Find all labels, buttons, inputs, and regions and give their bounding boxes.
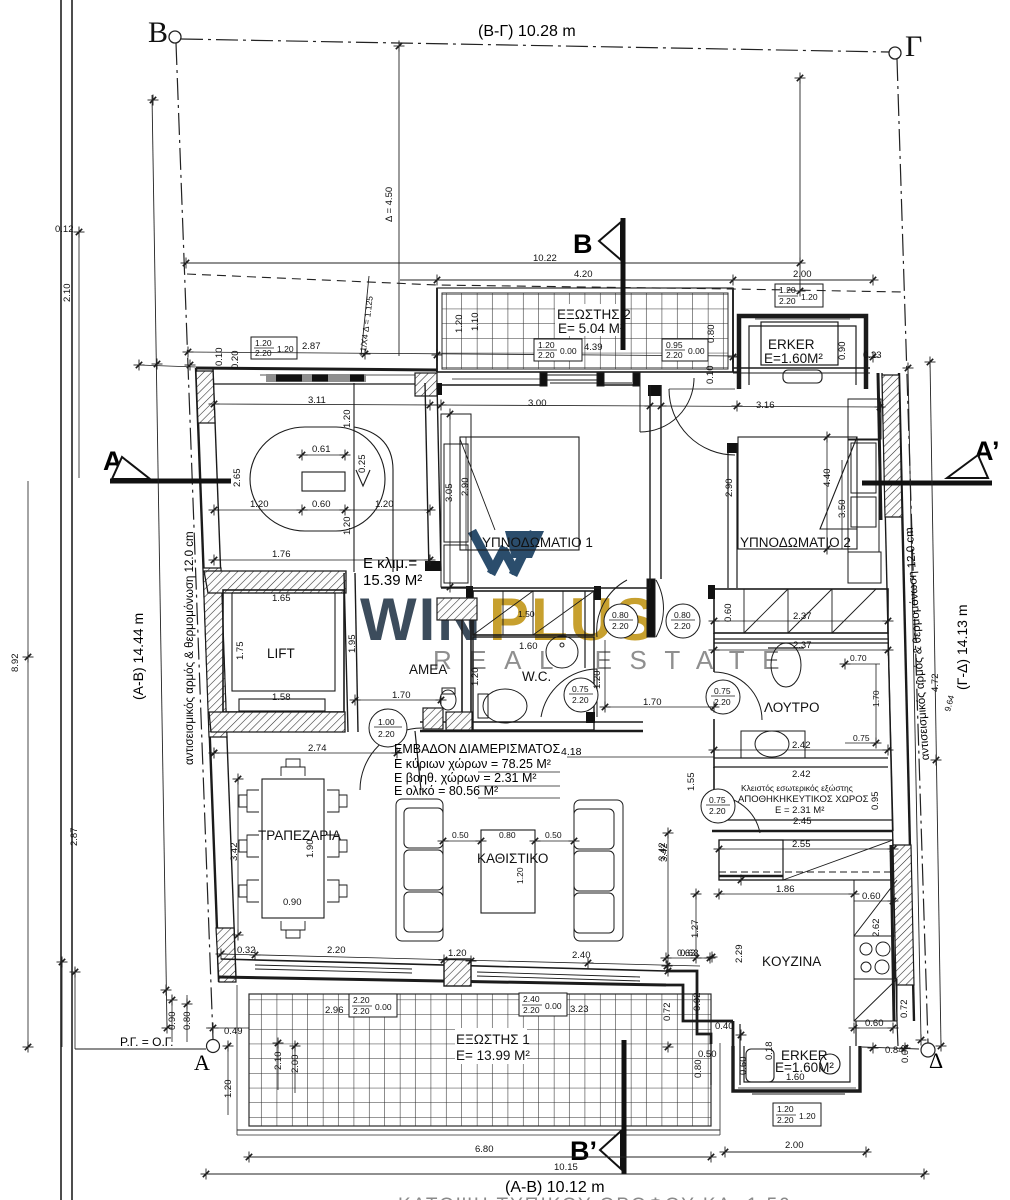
svg-text:1.70: 1.70: [392, 690, 411, 701]
svg-text:1.20: 1.20: [250, 499, 269, 510]
svg-text:0.00: 0.00: [375, 1002, 392, 1012]
svg-text:2.10: 2.10: [273, 1052, 284, 1071]
svg-text:0.00: 0.00: [688, 346, 705, 356]
svg-text:1.60: 1.60: [786, 1072, 805, 1083]
svg-text:Δ: Δ: [929, 1048, 943, 1073]
svg-text:0.60: 0.60: [723, 604, 734, 623]
svg-text:2.00: 2.00: [785, 1140, 804, 1151]
svg-text:4.18: 4.18: [561, 746, 582, 758]
svg-text:4.72: 4.72: [930, 674, 941, 693]
svg-text:0.25: 0.25: [357, 455, 368, 474]
svg-text:4.20: 4.20: [574, 269, 593, 280]
svg-text:0.75: 0.75: [853, 733, 870, 743]
svg-text:2.42: 2.42: [792, 769, 811, 780]
svg-text:(A-B) 10.12 m: (A-B) 10.12 m: [505, 1179, 605, 1196]
svg-text:0.00: 0.00: [560, 346, 577, 356]
svg-text:0.40: 0.40: [715, 1021, 734, 1032]
svg-text:2.42: 2.42: [792, 740, 811, 751]
svg-text:1.20: 1.20: [777, 1104, 794, 1114]
svg-text:ΕΞΩΣΤΗΣ 2: ΕΞΩΣΤΗΣ 2: [557, 307, 631, 322]
svg-text:0.80: 0.80: [674, 610, 691, 620]
svg-text:1.20: 1.20: [375, 499, 394, 510]
svg-text:1.20: 1.20: [342, 517, 353, 536]
svg-text:0.95: 0.95: [870, 792, 881, 811]
svg-text:0.20: 0.20: [230, 351, 241, 370]
svg-text:E=1.60M²: E=1.60M²: [764, 351, 823, 366]
svg-text:E = 2.31 M²: E = 2.31 M²: [775, 805, 824, 816]
svg-text:0.95: 0.95: [666, 340, 683, 350]
svg-text:0.90: 0.90: [283, 897, 302, 908]
svg-text:2.20: 2.20: [709, 806, 726, 816]
svg-text:B: B: [148, 16, 168, 49]
svg-text:3.05: 3.05: [444, 484, 455, 503]
svg-text:0.75: 0.75: [714, 686, 731, 696]
svg-text:0.92: 0.92: [692, 993, 703, 1012]
svg-text:2.20: 2.20: [378, 729, 395, 739]
svg-text:3.00: 3.00: [528, 398, 547, 409]
svg-text:6.80: 6.80: [475, 1144, 494, 1155]
svg-text:0.72: 0.72: [899, 1000, 910, 1019]
svg-text:0.80: 0.80: [182, 1012, 193, 1031]
svg-text:2.20: 2.20: [666, 350, 683, 360]
svg-text:1.60: 1.60: [519, 641, 538, 652]
svg-text:2.45: 2.45: [793, 816, 812, 827]
svg-text:2.20: 2.20: [523, 1005, 540, 1015]
svg-text:1.20: 1.20: [470, 668, 481, 687]
svg-text:1.10: 1.10: [470, 313, 481, 332]
svg-text:1.20: 1.20: [799, 1111, 816, 1121]
svg-text:0.72: 0.72: [662, 1003, 673, 1022]
svg-text:2.87: 2.87: [302, 341, 321, 352]
svg-text:0.32: 0.32: [237, 945, 256, 956]
svg-text:1.65: 1.65: [272, 593, 291, 604]
svg-text:Κλειστός εσωτερικός εξώστης: Κλειστός εσωτερικός εξώστης: [741, 783, 853, 793]
svg-text:1.70: 1.70: [871, 690, 881, 707]
svg-text:4.39: 4.39: [584, 342, 603, 353]
svg-text:1.75: 1.75: [235, 642, 246, 661]
svg-text:0.80: 0.80: [706, 325, 717, 344]
svg-text:2.74: 2.74: [308, 743, 327, 754]
svg-text:0.61: 0.61: [312, 444, 331, 455]
svg-text:1.20: 1.20: [538, 340, 555, 350]
svg-text:ΛΟΥΤΡΟ: ΛΟΥΤΡΟ: [764, 700, 820, 715]
svg-text:ERKER: ERKER: [768, 337, 815, 352]
svg-text:LIFT: LIFT: [267, 646, 295, 661]
svg-text:2.20: 2.20: [353, 1006, 370, 1016]
svg-text:0.50: 0.50: [545, 830, 562, 840]
svg-text:0.23: 0.23: [863, 350, 882, 361]
svg-text:2.20: 2.20: [353, 995, 370, 1005]
svg-text:0.75: 0.75: [572, 684, 589, 694]
svg-text:2.55: 2.55: [792, 839, 811, 850]
svg-text:2.37: 2.37: [793, 611, 812, 622]
svg-text:0.60: 0.60: [312, 499, 331, 510]
svg-text:1.20: 1.20: [448, 948, 467, 959]
svg-text:1.20: 1.20: [454, 315, 465, 334]
svg-text:1.95: 1.95: [347, 635, 358, 654]
svg-text:1.20: 1.20: [592, 671, 603, 690]
svg-text:1.20: 1.20: [801, 292, 818, 302]
svg-text:1.90: 1.90: [305, 840, 316, 859]
svg-text:2.20: 2.20: [538, 350, 555, 360]
svg-text:ΕΞΩΣΤΗΣ 1: ΕΞΩΣΤΗΣ 1: [456, 1032, 530, 1047]
svg-text:2.00: 2.00: [793, 269, 812, 280]
svg-text:ΥΠΝΟΔΩΜΑΤΙΟ 1: ΥΠΝΟΔΩΜΑΤΙΟ 1: [482, 535, 593, 550]
svg-text:Ρ.Γ. = Ο.Γ.: Ρ.Γ. = Ο.Γ.: [120, 1035, 173, 1049]
svg-text:ΤΡΑΠΕΖΑΡΙΑ: ΤΡΑΠΕΖΑΡΙΑ: [258, 828, 341, 843]
svg-text:2.62: 2.62: [871, 919, 882, 938]
svg-text:10.15: 10.15: [554, 1162, 578, 1173]
svg-text:0.80: 0.80: [693, 1060, 704, 1079]
svg-text:1.20: 1.20: [223, 1080, 234, 1099]
svg-text:αντισεισμικός αρμός & θερμομόν: αντισεισμικός αρμός & θερμομόνωση 12.0 c…: [184, 531, 196, 765]
svg-text:2.90: 2.90: [460, 478, 471, 497]
svg-text:3.16: 3.16: [756, 400, 775, 411]
svg-text:2.00: 2.00: [290, 1055, 301, 1074]
svg-text:2.29: 2.29: [734, 945, 745, 964]
svg-text:0.50: 0.50: [698, 1049, 717, 1060]
svg-text:2.96: 2.96: [325, 1005, 344, 1016]
svg-text:2.87: 2.87: [69, 828, 80, 847]
svg-text:0.10: 0.10: [705, 366, 716, 385]
svg-text:2.20: 2.20: [255, 348, 272, 358]
svg-text:ΑΠΟΘΗΚΗΚΕΥΤΙΚΟΣ ΧΩΡΟΣ: ΑΠΟΘΗΚΗΚΕΥΤΙΚΟΣ ΧΩΡΟΣ: [738, 794, 869, 805]
svg-text:0.00: 0.00: [545, 1001, 562, 1011]
svg-text:ΚΑΤΟΨΗ ΤΥΠΙΚΟΥ ΟΡΟΦΟΥ ΚΛ. 1:50: ΚΑΤΟΨΗ ΤΥΠΙΚΟΥ ΟΡΟΦΟΥ ΚΛ. 1:50: [398, 1195, 792, 1200]
svg-text:2.40: 2.40: [523, 994, 540, 1004]
svg-text:2.20: 2.20: [779, 296, 796, 306]
svg-text:Δ = 4.50: Δ = 4.50: [384, 187, 395, 222]
svg-text:E=1.60M²: E=1.60M²: [775, 1060, 834, 1075]
svg-text:1.20: 1.20: [255, 338, 272, 348]
svg-text:2.10: 2.10: [62, 284, 73, 303]
svg-text:0.63: 0.63: [677, 948, 696, 959]
svg-text:Ε βοηθ. χώρων = 2.31 M²: Ε βοηθ. χώρων = 2.31 M²: [394, 771, 537, 785]
svg-text:0.80: 0.80: [612, 610, 629, 620]
svg-text:1.00: 1.00: [378, 717, 395, 727]
svg-text:0.80: 0.80: [499, 830, 516, 840]
svg-text:ΚΑΘΙΣΤΙΚΟ: ΚΑΘΙΣΤΙΚΟ: [477, 851, 548, 866]
svg-text:B: B: [573, 229, 593, 259]
svg-text:0.70: 0.70: [850, 653, 867, 663]
svg-text:0.60: 0.60: [862, 891, 881, 902]
svg-text:3.23: 3.23: [570, 1004, 589, 1015]
svg-text:2.20: 2.20: [777, 1115, 794, 1125]
svg-text:Γ: Γ: [905, 30, 922, 63]
svg-text:0.90: 0.90: [837, 342, 848, 361]
svg-text:1.27: 1.27: [690, 920, 701, 939]
svg-text:0.60: 0.60: [738, 1057, 749, 1076]
svg-text:E κλιμ.=: E κλιμ.=: [363, 555, 417, 572]
svg-text:ΕΜΒΑΔΟΝ ΔΙΑΜΕΡΙΣΜΑΤΟΣ: ΕΜΒΑΔΟΝ ΔΙΑΜΕΡΙΣΜΑΤΟΣ: [394, 742, 560, 756]
svg-text:3.42: 3.42: [229, 843, 240, 862]
svg-text:8.92: 8.92: [10, 654, 21, 673]
svg-text:1.20: 1.20: [342, 410, 353, 429]
svg-text:2.20: 2.20: [327, 945, 346, 956]
svg-text:W.C.: W.C.: [522, 669, 551, 684]
svg-text:AMEA: AMEA: [409, 662, 447, 677]
svg-text:1.70: 1.70: [643, 697, 662, 708]
svg-text:1.86: 1.86: [776, 884, 795, 895]
svg-text:1.58: 1.58: [272, 692, 291, 703]
svg-text:4.40: 4.40: [822, 469, 833, 488]
svg-text:1.20: 1.20: [515, 867, 525, 884]
svg-text:3.11: 3.11: [308, 395, 326, 406]
svg-text:Ε κύριων χώρων = 78.25 M²: Ε κύριων χώρων = 78.25 M²: [394, 757, 551, 771]
svg-text:0.75: 0.75: [709, 795, 726, 805]
svg-text:A: A: [194, 1050, 210, 1075]
svg-text:0.18: 0.18: [764, 1042, 775, 1061]
svg-text:15.39 M²: 15.39 M²: [363, 572, 422, 589]
svg-text:0.10: 0.10: [214, 348, 225, 367]
svg-text:0.50: 0.50: [452, 830, 469, 840]
svg-text:(Β-Γ) 10.28 m: (Β-Γ) 10.28 m: [478, 23, 576, 40]
svg-text:(Γ-Δ) 14.13 m: (Γ-Δ) 14.13 m: [954, 604, 970, 690]
svg-text:3.50: 3.50: [837, 500, 848, 519]
svg-text:2.90: 2.90: [724, 479, 735, 498]
svg-text:E= 13.99 M²: E= 13.99 M²: [456, 1048, 530, 1063]
svg-text:2.20: 2.20: [674, 621, 691, 631]
svg-text:KOYZINA: KOYZINA: [762, 954, 821, 969]
svg-text:2.65: 2.65: [232, 469, 243, 488]
svg-text:2.20: 2.20: [612, 621, 629, 631]
svg-text:1.76: 1.76: [272, 549, 291, 560]
svg-text:ΥΠΝΟΔΩΜΑΤΙΟ 2: ΥΠΝΟΔΩΜΑΤΙΟ 2: [740, 535, 851, 550]
svg-text:0.12: 0.12: [55, 224, 74, 235]
svg-text:(Α-Β) 14.44 m: (Α-Β) 14.44 m: [130, 613, 146, 700]
svg-text:E= 5.04 M²: E= 5.04 M²: [558, 321, 625, 336]
svg-text:3.42: 3.42: [657, 843, 668, 862]
svg-text:1.50: 1.50: [518, 609, 535, 619]
svg-text:2.37: 2.37: [793, 640, 812, 651]
svg-text:REAL ESTATE: REAL ESTATE: [433, 645, 797, 675]
svg-text:10.22: 10.22: [533, 253, 557, 264]
svg-text:2.20: 2.20: [572, 695, 589, 705]
svg-text:1.55: 1.55: [686, 773, 697, 792]
svg-text:0.60: 0.60: [865, 1018, 884, 1029]
